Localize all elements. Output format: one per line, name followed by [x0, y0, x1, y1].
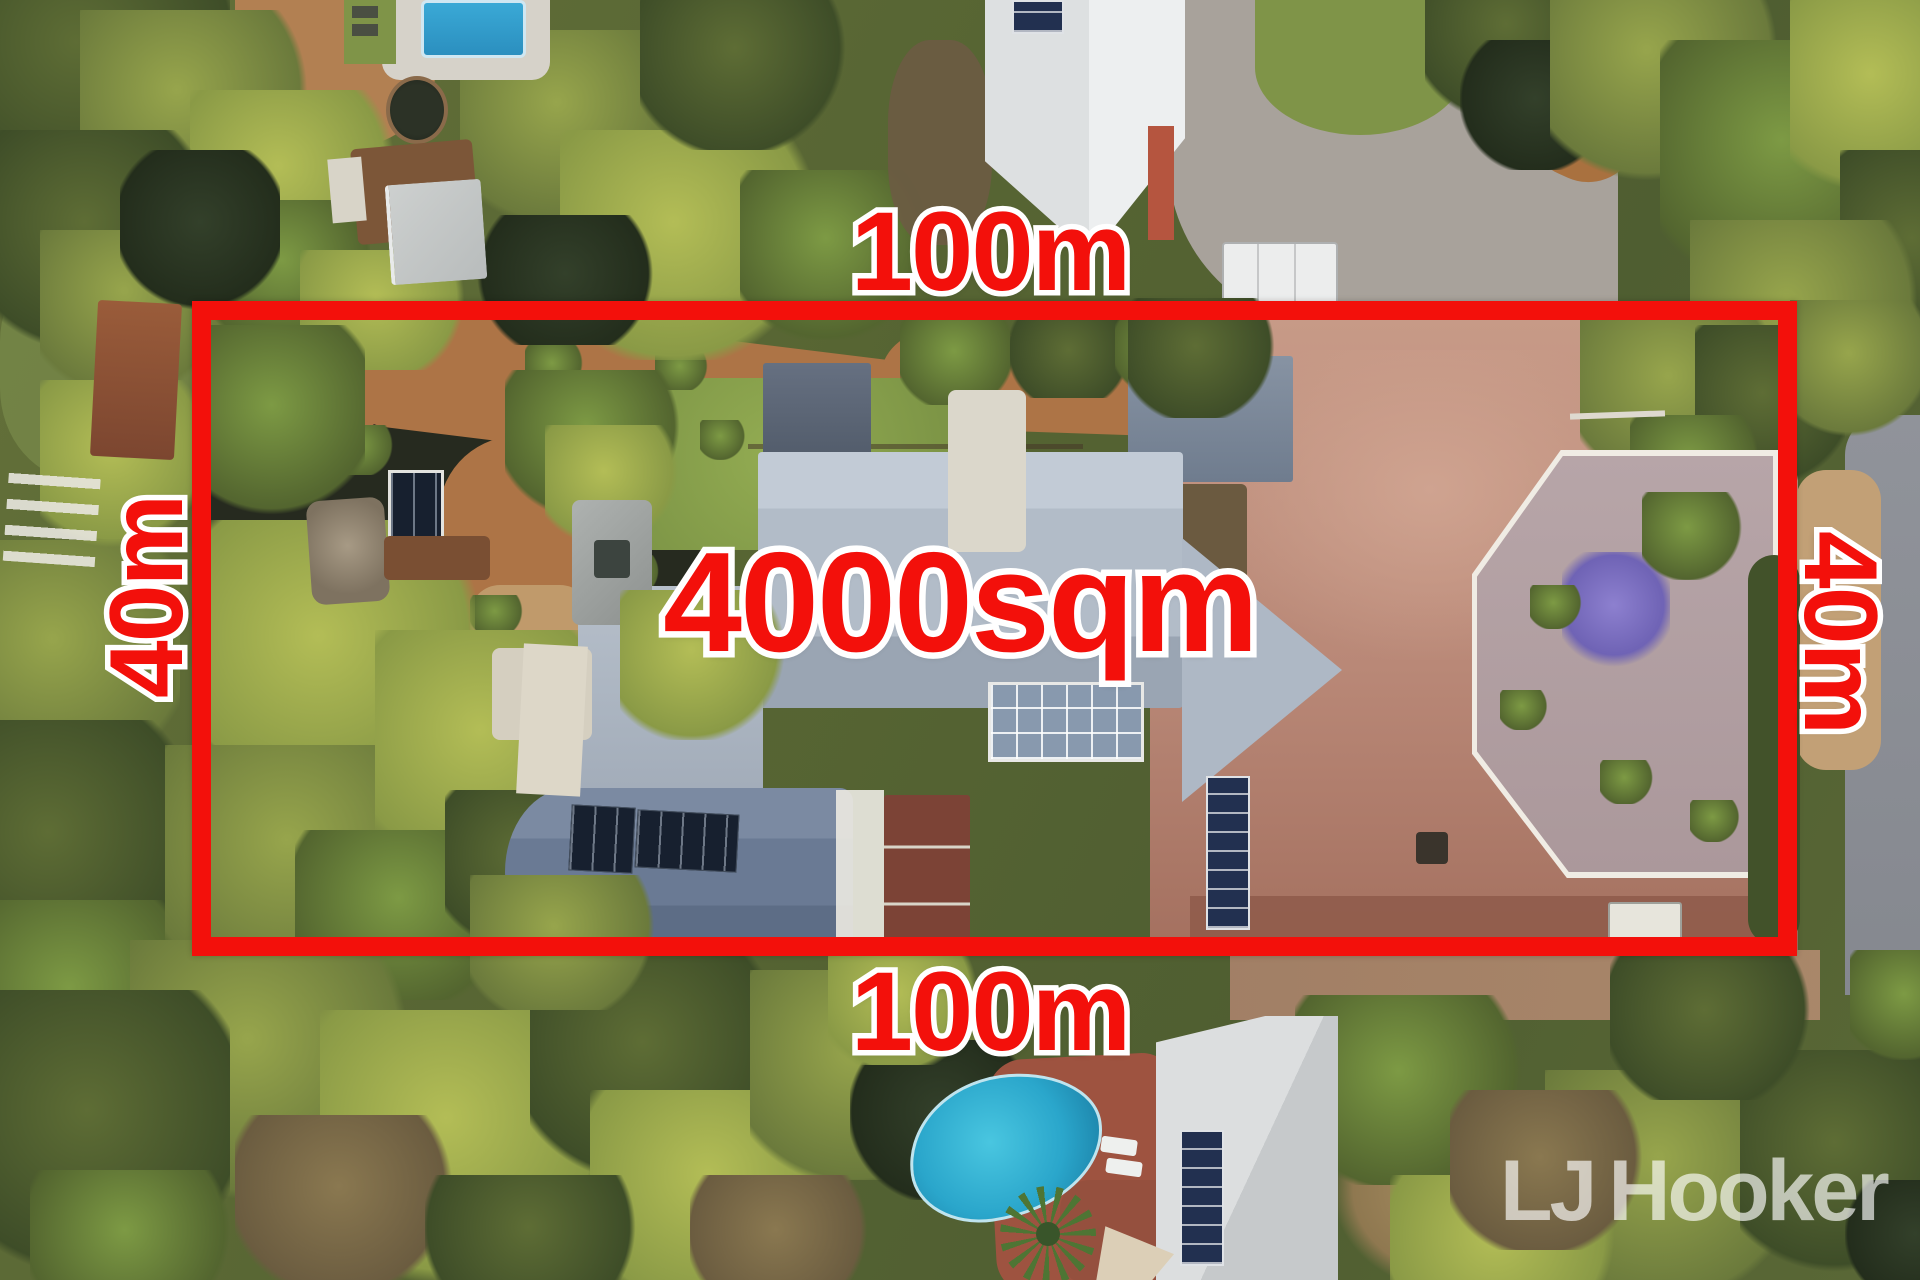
white-fence-stairs	[3, 465, 101, 567]
tree-canopy	[425, 1175, 655, 1280]
swimming-pool-top	[421, 0, 526, 58]
water-tank	[386, 76, 448, 144]
sun-lounger	[352, 6, 378, 18]
tree-canopy	[1610, 950, 1820, 1100]
top-width-label: 100m100m	[820, 196, 1160, 308]
watermark-name: Hooker	[1608, 1142, 1886, 1241]
rusty-shed-roof	[90, 300, 182, 460]
tree-canopy	[1790, 300, 1920, 440]
area-label: 4000sqm4000sqm	[640, 532, 1280, 674]
shed-roof	[385, 179, 488, 285]
right-depth-label: 40m40m	[1782, 524, 1892, 740]
watermark-prefix: LJ	[1500, 1142, 1594, 1241]
agency-watermark: LJHooker	[1500, 1142, 1887, 1241]
solar-panel-array	[1180, 1130, 1224, 1266]
left-depth-label: 40m40m	[95, 489, 205, 705]
aerial-property-photo: 100m100m 100m100m 40m40m 40m40m 4000sqm4…	[0, 0, 1920, 1280]
palm-tree-center	[1036, 1222, 1060, 1246]
tree-canopy	[1850, 950, 1920, 1060]
bottom-width-label: 100m100m	[820, 956, 1160, 1068]
small-structure	[327, 157, 366, 224]
tree-canopy	[30, 1170, 240, 1280]
sun-lounger	[352, 24, 378, 36]
tree-canopy	[640, 0, 850, 150]
tree-shadow	[120, 150, 280, 310]
solar-panel	[1012, 0, 1064, 34]
